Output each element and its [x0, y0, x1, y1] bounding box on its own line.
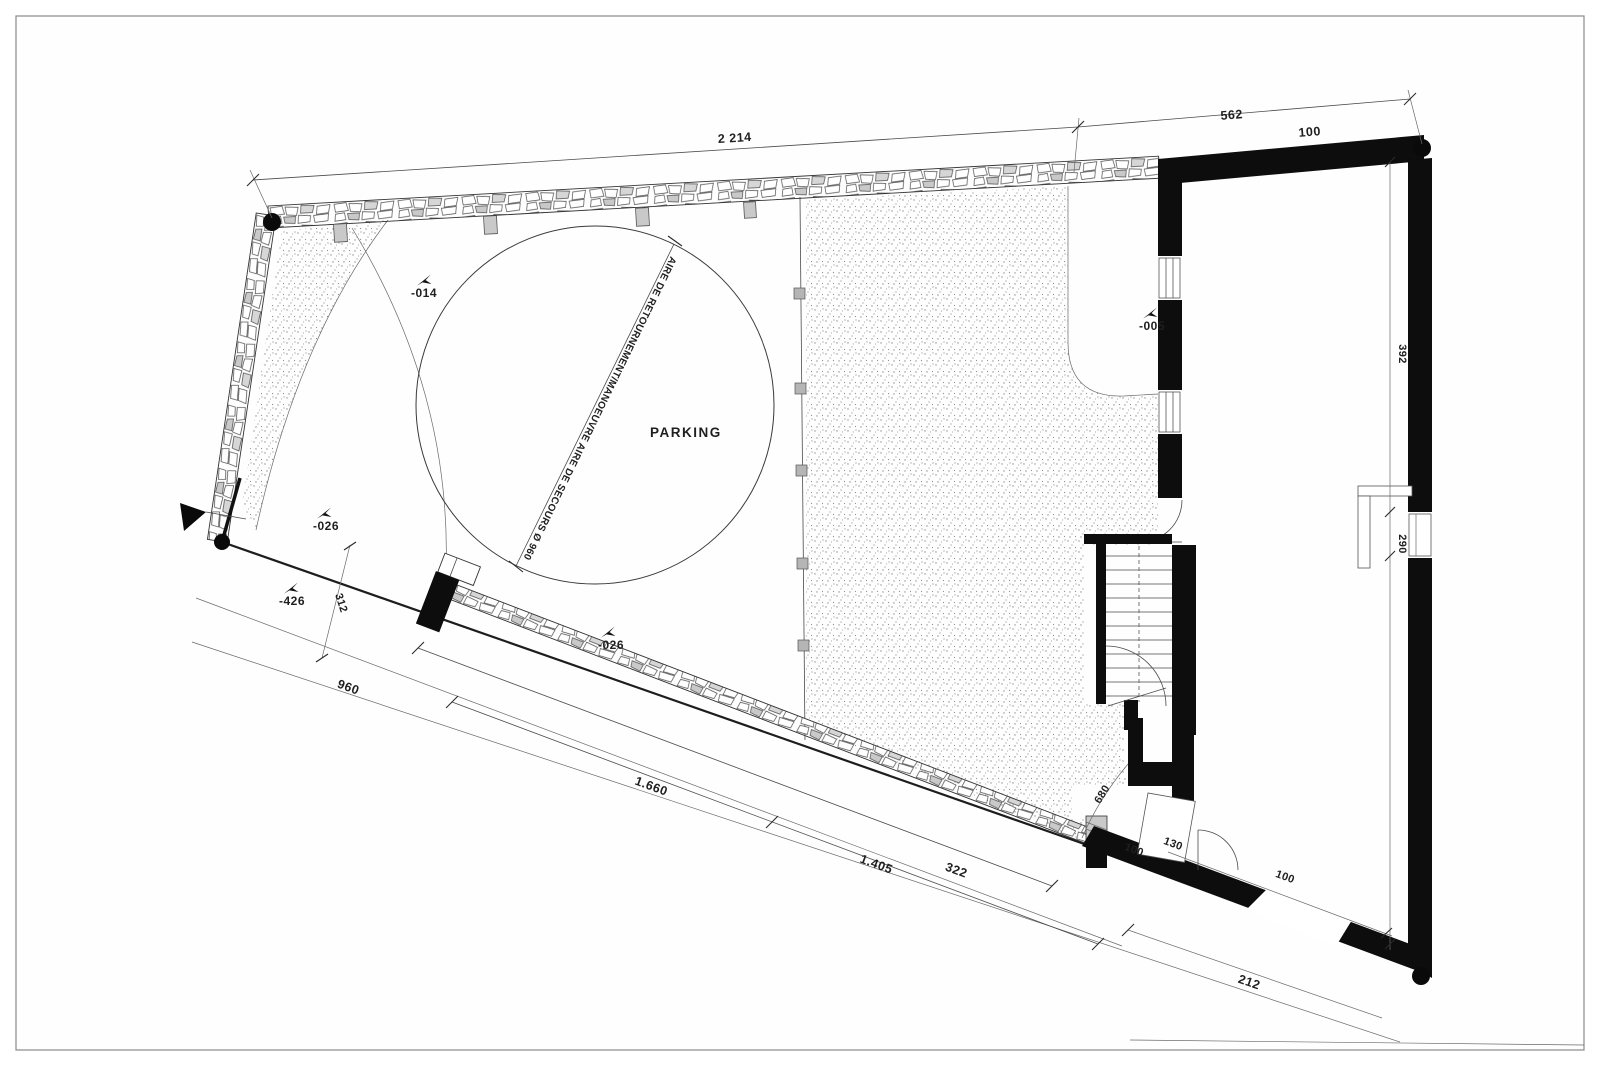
dim-top-100: 100 — [1298, 124, 1321, 140]
level-014: -014 — [411, 286, 437, 300]
dim-side-392: 392 — [1396, 344, 1408, 364]
dim-side-290: 290 — [1396, 534, 1408, 554]
parking-label: PARKING — [650, 425, 722, 440]
level-026a: -026 — [313, 519, 339, 533]
building-right-wall-lower — [1408, 558, 1432, 978]
dim-top-main: 2 214 — [717, 130, 752, 146]
sheet-border — [16, 16, 1584, 1050]
bottom-room — [1137, 793, 1195, 862]
dim-top-562: 562 — [1220, 107, 1243, 123]
level-026b: -026 — [598, 638, 624, 652]
level-005: -005 — [1139, 319, 1165, 333]
site-plan-drawing: AIRE DE RETOURNEMENT/MANOEUVRE AIRE DE S… — [0, 0, 1600, 1066]
plan-sheet: AIRE DE RETOURNEMENT/MANOEUVRE AIRE DE S… — [0, 0, 1600, 1066]
level-426: -426 — [279, 594, 305, 608]
building-right-wall-upper — [1408, 158, 1432, 512]
